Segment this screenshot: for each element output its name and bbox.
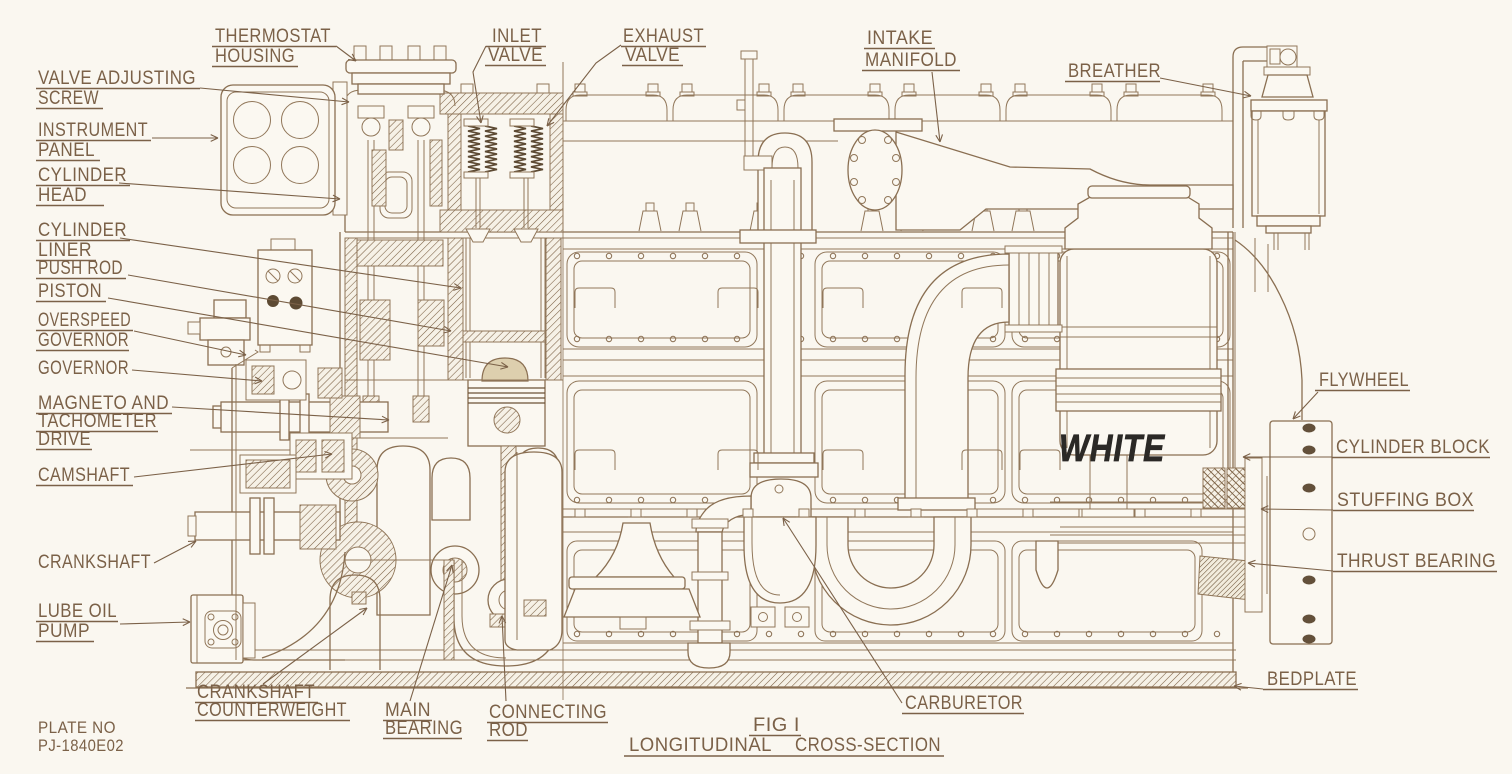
svg-text:BEDPLATE: BEDPLATE <box>1267 669 1357 690</box>
svg-text:PJ-1840E02: PJ-1840E02 <box>38 736 124 755</box>
svg-text:EXHAUST: EXHAUST <box>623 26 704 47</box>
svg-text:CAMSHAFT: CAMSHAFT <box>38 465 130 486</box>
svg-text:VALVE ADJUSTING: VALVE ADJUSTING <box>38 68 196 89</box>
svg-text:INLET: INLET <box>492 26 542 47</box>
svg-text:THERMOSTAT: THERMOSTAT <box>215 26 331 47</box>
svg-text:CYLINDER: CYLINDER <box>38 220 127 241</box>
svg-text:CROSS-SECTION: CROSS-SECTION <box>795 735 941 756</box>
svg-text:INTAKE: INTAKE <box>867 28 933 49</box>
svg-text:THRUST BEARING: THRUST BEARING <box>1337 551 1496 572</box>
svg-text:FIG I: FIG I <box>753 715 800 736</box>
svg-text:PISTON: PISTON <box>38 281 102 302</box>
svg-text:HOUSING: HOUSING <box>215 46 295 67</box>
svg-text:CARBURETOR: CARBURETOR <box>905 693 1023 714</box>
svg-text:WHITE: WHITE <box>1059 428 1166 470</box>
svg-text:STUFFING BOX: STUFFING BOX <box>1337 490 1474 511</box>
svg-text:HEAD: HEAD <box>38 185 87 206</box>
svg-text:GOVERNOR: GOVERNOR <box>38 358 129 379</box>
svg-text:INSTRUMENT: INSTRUMENT <box>38 120 148 141</box>
svg-text:PANEL: PANEL <box>38 140 95 161</box>
svg-text:VALVE: VALVE <box>488 45 543 66</box>
svg-text:SCREW: SCREW <box>38 88 99 109</box>
svg-text:PLATE NO: PLATE NO <box>38 718 116 737</box>
svg-text:OVERSPEED: OVERSPEED <box>38 310 131 331</box>
svg-text:LONGITUDINAL: LONGITUDINAL <box>629 735 772 756</box>
svg-text:GOVERNOR: GOVERNOR <box>38 330 129 351</box>
svg-text:MANIFOLD: MANIFOLD <box>865 50 957 71</box>
svg-text:PUSH ROD: PUSH ROD <box>38 258 123 279</box>
svg-text:VALVE: VALVE <box>625 45 680 66</box>
svg-text:CRANKSHAFT: CRANKSHAFT <box>38 552 151 573</box>
svg-text:FLYWHEEL: FLYWHEEL <box>1319 370 1409 391</box>
svg-text:PUMP: PUMP <box>38 621 90 642</box>
svg-text:CYLINDER: CYLINDER <box>38 165 127 186</box>
svg-text:LUBE OIL: LUBE OIL <box>38 601 117 622</box>
svg-text:CYLINDER BLOCK: CYLINDER BLOCK <box>1336 437 1490 458</box>
svg-text:BREATHER: BREATHER <box>1068 61 1161 82</box>
